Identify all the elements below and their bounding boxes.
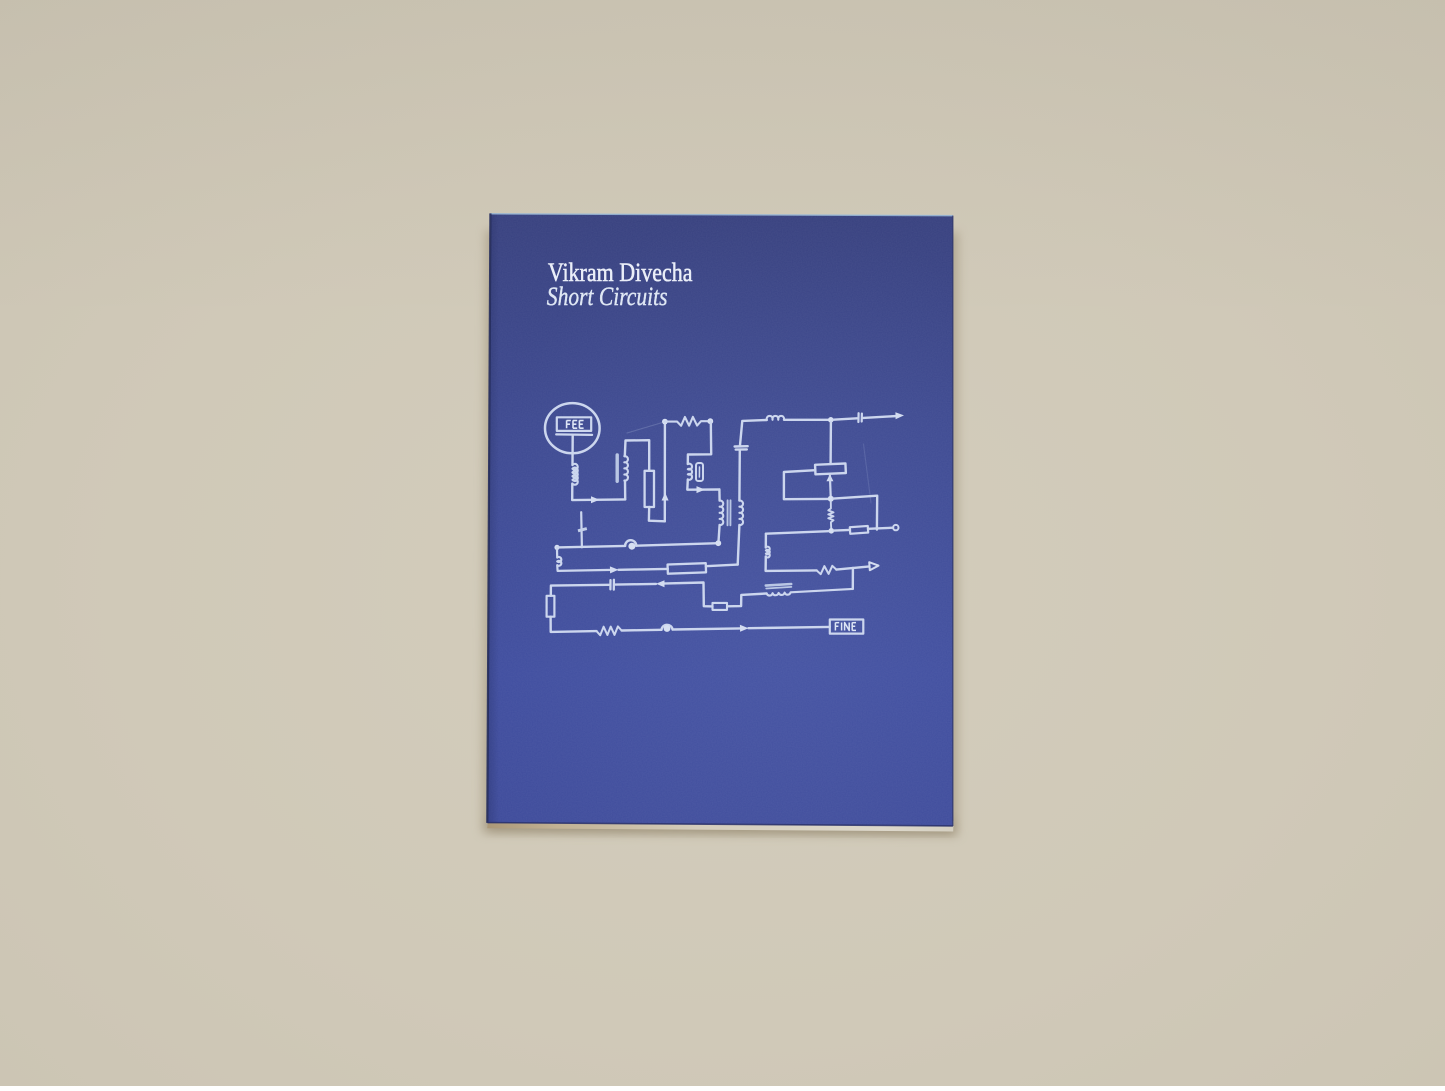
svg-text:Short Circuits: Short Circuits bbox=[547, 282, 668, 311]
